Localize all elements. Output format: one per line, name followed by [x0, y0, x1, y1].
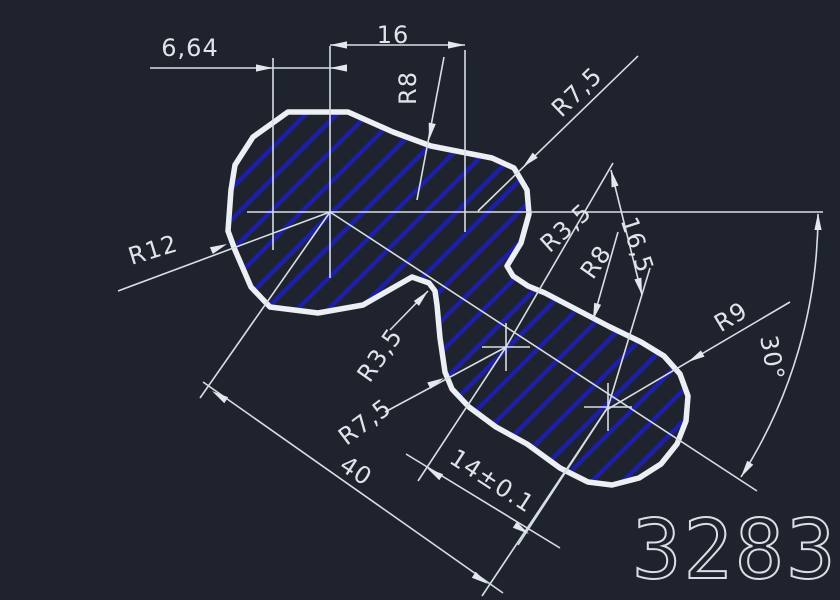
- leader-r75-top: [478, 56, 638, 211]
- cad-model-space[interactable]: 3283 6,64 16 R8 R7,5 R12 R3,5 R8 16,5 R3…: [0, 0, 840, 600]
- part-outline: [228, 112, 688, 485]
- angle-label-30: 30°: [756, 333, 788, 382]
- dim-label-16: 16: [377, 23, 410, 47]
- part-number: 3283: [632, 503, 837, 598]
- radius-label-r8-top: R8: [396, 71, 420, 105]
- dim-label-6-64: 6,64: [161, 36, 218, 60]
